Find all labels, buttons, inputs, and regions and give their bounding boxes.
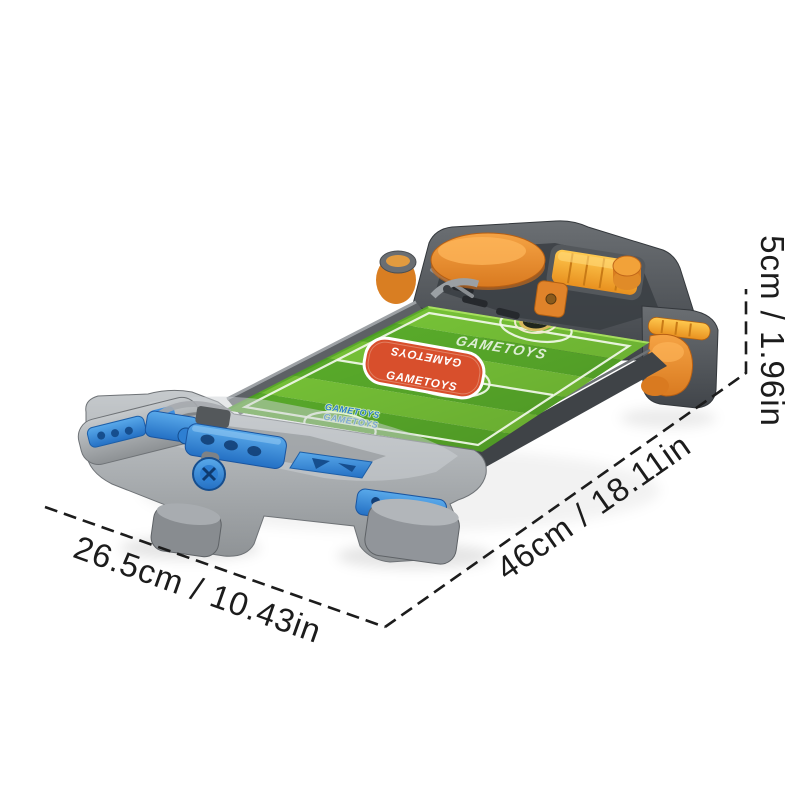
dimension-label-height: 5cm / 1.96in (754, 235, 791, 427)
orange-cylinder-button (613, 256, 641, 290)
corner-knob-left (376, 251, 416, 304)
product-image-canvas: GAMETOYS GAMETOYS GAMETOYS GAMETOYS GAME… (0, 0, 800, 800)
bracket-hole (443, 285, 451, 293)
product-photo: GAMETOYS GAMETOYS GAMETOYS GAMETOYS GAME… (75, 221, 718, 566)
goal-center-tab (534, 280, 568, 318)
product-dimension-image: GAMETOYS GAMETOYS GAMETOYS GAMETOYS GAME… (0, 0, 800, 800)
